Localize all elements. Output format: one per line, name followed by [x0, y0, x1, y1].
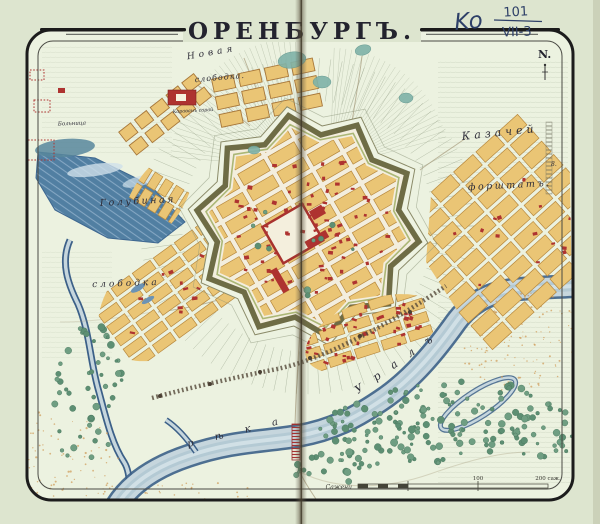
annotation-numerator: 101	[503, 4, 529, 20]
compass-label: N.	[538, 48, 551, 61]
fraction-bar	[494, 20, 542, 22]
title-rule-right	[420, 28, 560, 31]
karavan-sarai-building	[168, 90, 196, 105]
scale-100: 100	[473, 476, 484, 482]
red-building	[58, 88, 65, 93]
label-bolnitsa: Больница	[57, 121, 86, 128]
title-rule-left	[40, 28, 186, 31]
page-edge-shade	[593, 0, 600, 524]
map-canvas: Новая слободка. Караванъ сарай Больница …	[0, 0, 600, 524]
fold-crease	[295, 0, 307, 524]
map-page: Новая слободка. Караванъ сарай Больница …	[0, 0, 600, 524]
annotation-denominator: VII-3	[502, 24, 532, 40]
scale-unit-label: Сажени	[326, 484, 352, 491]
annotation-prefix: Ko	[453, 8, 484, 36]
scale-200: 200 саж.	[535, 476, 561, 482]
label-ref-number: 8.	[551, 161, 557, 168]
